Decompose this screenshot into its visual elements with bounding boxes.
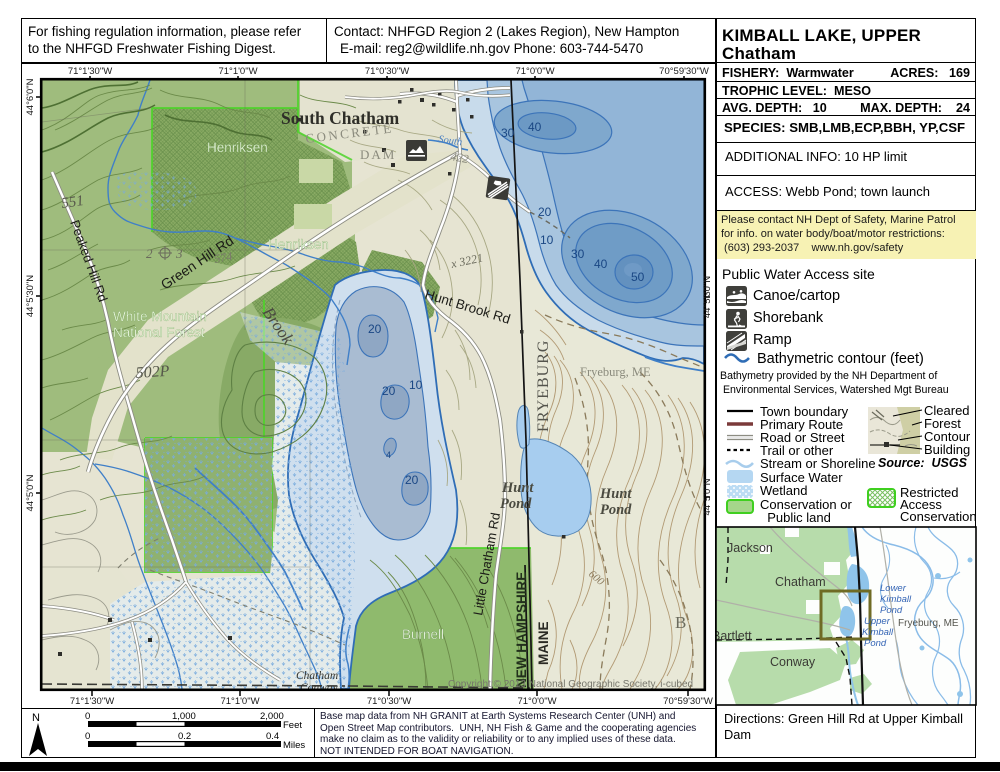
svg-text:0: 0 <box>85 731 90 742</box>
svg-text:0.2: 0.2 <box>178 731 191 742</box>
svg-text:4: 4 <box>386 450 391 460</box>
svg-text:2: 2 <box>146 246 153 261</box>
svg-text:Lower: Lower <box>880 583 907 594</box>
svg-text:Pond: Pond <box>880 605 903 616</box>
svg-text:71°0'30"W: 71°0'30"W <box>367 696 411 707</box>
svg-text:50: 50 <box>631 270 645 284</box>
svg-text:Fryeburg, ME: Fryeburg, ME <box>580 365 651 379</box>
svg-text:Bartlett: Bartlett <box>712 629 752 643</box>
svg-text:Conway: Conway <box>300 682 339 694</box>
svg-text:10: 10 <box>540 233 554 247</box>
svg-text:40: 40 <box>528 120 542 134</box>
svg-text:71°1'0"W: 71°1'0"W <box>220 696 259 707</box>
svg-text:Hunt: Hunt <box>599 486 632 502</box>
svg-text:20: 20 <box>382 384 396 398</box>
svg-text:10: 10 <box>409 378 423 392</box>
svg-text:71°0'0"W: 71°0'0"W <box>517 696 556 707</box>
svg-text:0.4: 0.4 <box>266 731 279 742</box>
svg-text:44°5'30"N: 44°5'30"N <box>25 275 36 317</box>
svg-text:40: 40 <box>594 257 608 271</box>
svg-text:3: 3 <box>175 246 183 261</box>
svg-text:Hunt: Hunt <box>501 480 534 496</box>
svg-text:DAM: DAM <box>360 147 396 162</box>
svg-text:71°1'0"W: 71°1'0"W <box>218 66 257 77</box>
svg-text:30: 30 <box>501 126 515 140</box>
svg-text:Feet: Feet <box>283 720 302 731</box>
svg-text:Kimball: Kimball <box>880 594 912 605</box>
svg-text:71°0'30"W: 71°0'30"W <box>365 66 409 77</box>
svg-text:71°0'0"W: 71°0'0"W <box>515 66 554 77</box>
svg-text:71°1'30"W: 71°1'30"W <box>68 66 112 77</box>
svg-text:20: 20 <box>368 322 382 336</box>
svg-text:Chatham: Chatham <box>775 575 826 589</box>
svg-text:Pond: Pond <box>600 502 632 518</box>
svg-text:44°6'0"N: 44°6'0"N <box>25 78 36 115</box>
svg-text:70°59'30"W: 70°59'30"W <box>663 696 713 707</box>
svg-text:20: 20 <box>538 205 552 219</box>
svg-text:Conway: Conway <box>770 655 816 669</box>
svg-text:Henriksen: Henriksen <box>268 237 329 252</box>
svg-text:Henriksen: Henriksen <box>207 140 268 155</box>
svg-text:1,000: 1,000 <box>172 711 196 722</box>
svg-text:Pond: Pond <box>864 638 887 649</box>
svg-text:FRYEBURG: FRYEBURG <box>535 340 552 432</box>
svg-text:White Mountain: White Mountain <box>113 309 207 324</box>
svg-text:0: 0 <box>85 711 90 722</box>
svg-text:Miles: Miles <box>283 740 305 751</box>
svg-text:551: 551 <box>60 193 85 212</box>
svg-text:Chatham: Chatham <box>296 670 338 682</box>
svg-text:MAINE: MAINE <box>536 622 551 666</box>
svg-text:Pond: Pond <box>500 496 532 512</box>
svg-text:70°59'30"W: 70°59'30"W <box>659 66 709 77</box>
svg-text:Fryeburg, ME: Fryeburg, ME <box>898 618 959 629</box>
svg-text:20: 20 <box>405 473 419 487</box>
svg-text:Copyright:© 2013 National Geog: Copyright:© 2013 National Geographic Soc… <box>448 679 693 690</box>
svg-text:71°1'30"W: 71°1'30"W <box>70 696 114 707</box>
svg-text:30: 30 <box>571 247 585 261</box>
svg-text:502P: 502P <box>135 363 170 382</box>
svg-text:Jackson: Jackson <box>727 541 773 555</box>
svg-text:2,000: 2,000 <box>260 711 284 722</box>
svg-text:NEW HAMPSHIRE: NEW HAMPSHIRE <box>514 572 529 688</box>
svg-text:B: B <box>675 613 686 632</box>
svg-text:44°5'0"N: 44°5'0"N <box>25 474 36 511</box>
svg-text:N: N <box>32 712 40 724</box>
svg-text:National Forest: National Forest <box>113 325 205 340</box>
svg-text:Kimball: Kimball <box>862 627 894 638</box>
svg-text:Burnell: Burnell <box>402 627 444 642</box>
svg-text:Upper: Upper <box>864 616 891 627</box>
